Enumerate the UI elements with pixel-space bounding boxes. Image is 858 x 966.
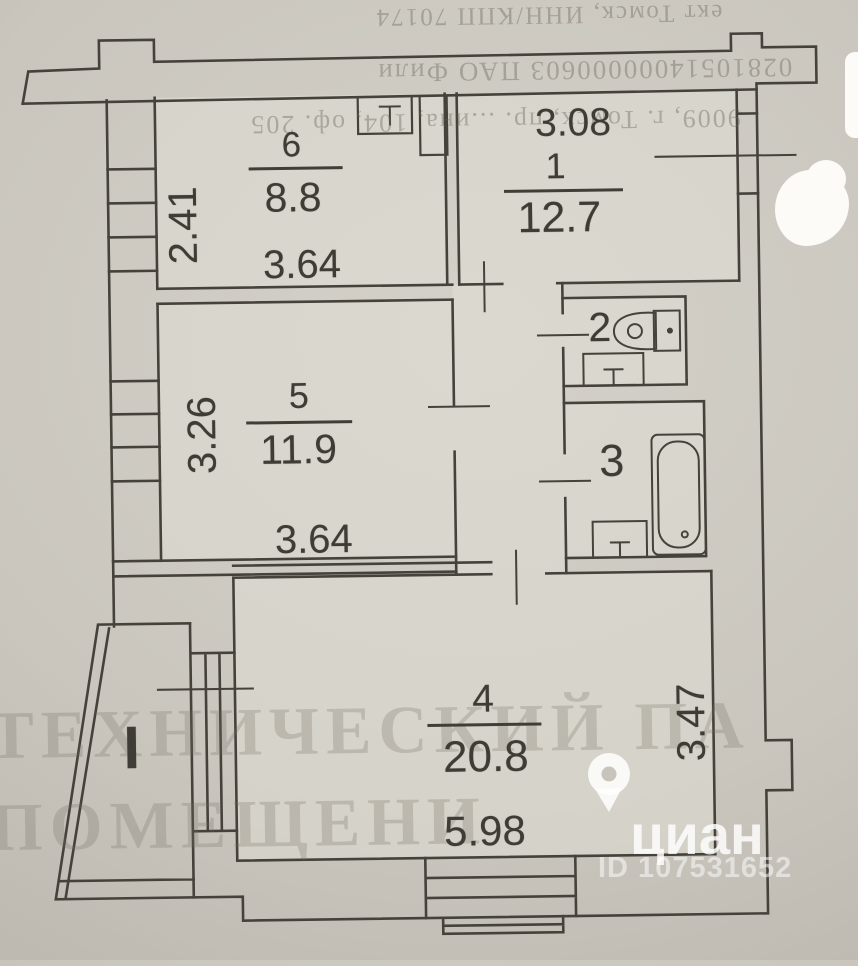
room-6-width-dim: 3.64	[263, 244, 341, 285]
room-2-number: 2	[588, 307, 611, 348]
door-tick-room2	[538, 335, 588, 336]
bleed-text-line2: 02810514000000603 ПАО Фили	[376, 51, 792, 88]
room-5-height-dim: 3.26	[182, 396, 223, 474]
window-room6-icon	[108, 169, 157, 272]
window-room5-icon	[111, 381, 160, 482]
room-4-height-dim: 3.47	[671, 683, 712, 761]
scanned-floor-plan-page: { "page": { "paper_color": "#cac6be", "i…	[0, 0, 858, 960]
watermark-id: ID 107531652	[598, 852, 792, 885]
balcony-mark: I	[123, 718, 141, 778]
white-blob-small	[806, 160, 846, 198]
room-3-fill	[564, 401, 706, 558]
room-6-number: 6	[281, 127, 301, 162]
balcony-bottom-edge	[60, 879, 194, 899]
room-3-number: 3	[599, 438, 625, 483]
dimension-tick-balcony	[158, 688, 253, 689]
room-5-area: 11.9	[260, 429, 337, 471]
bleed-text-big2: ПОМЕЩЕНИ	[0, 781, 487, 867]
room-6-height-dim: 2.41	[163, 186, 204, 264]
door-tick-room1	[484, 262, 485, 311]
white-edge-sliver	[845, 52, 858, 138]
room-4-number: 4	[472, 680, 494, 719]
door-tick-room3	[540, 481, 590, 482]
bleed-text-line1: ект Томск, ИНН/КПП 70174	[374, 0, 722, 31]
door-tick-room5	[429, 406, 489, 407]
room-1-number: 1	[545, 148, 566, 184]
left-outer-wall	[107, 100, 114, 626]
room-4-width-dim: 5.98	[444, 810, 526, 853]
room-1-area: 12.7	[517, 196, 601, 240]
room-6-area: 8.8	[264, 177, 322, 219]
corridor-fill	[452, 283, 566, 575]
window-bottom-icon	[425, 856, 576, 918]
door-tick-room4	[516, 551, 517, 604]
wall-r6-r5	[157, 285, 452, 304]
room-4-area: 20.8	[443, 735, 529, 780]
room-5-number: 5	[289, 378, 310, 414]
room-5-width-dim: 3.64	[275, 519, 353, 560]
room-1-width-dim: 3.08	[535, 103, 611, 143]
